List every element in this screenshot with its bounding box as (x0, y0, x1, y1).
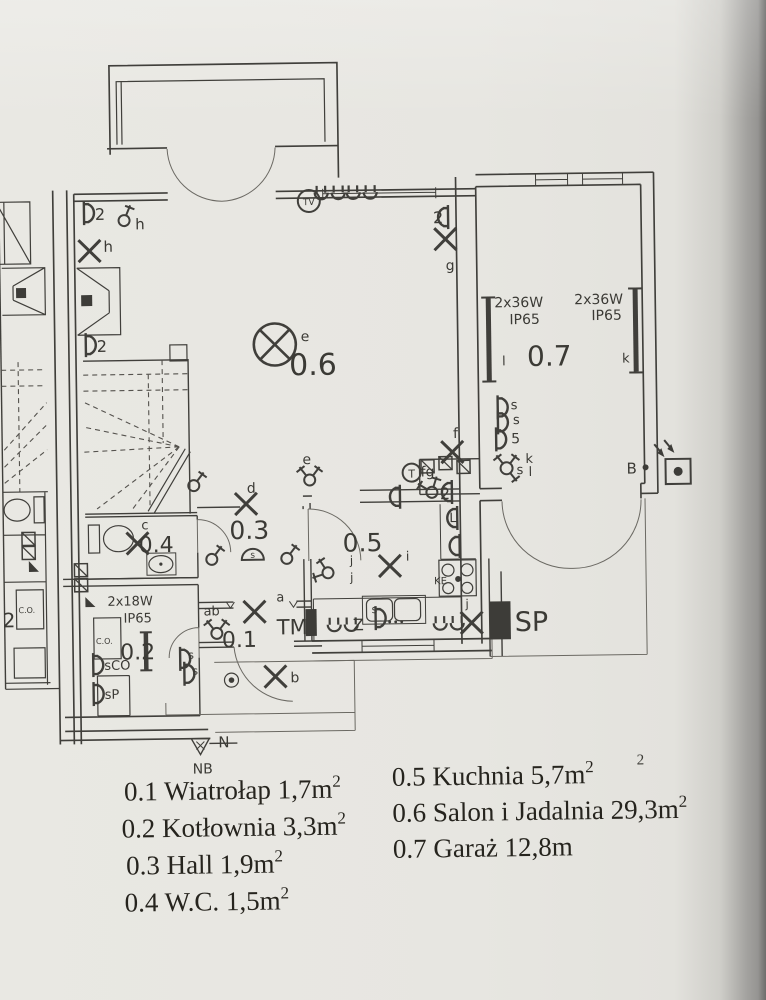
neighbor-room-number: 2 (2, 608, 15, 632)
bell-push-b (643, 464, 649, 470)
lamp-label-h: h (103, 238, 113, 256)
garage-door-arcs (502, 499, 642, 569)
wall-lamp-h (78, 240, 100, 262)
north-label: N (218, 733, 229, 751)
room-number-07: 0.7 (527, 339, 572, 373)
socket-label-s-a: s (188, 649, 194, 662)
switch-label-e: e (302, 452, 311, 468)
switch-label-fg: fg (421, 464, 435, 480)
sink-basin-right (394, 598, 420, 620)
sink-switch-label: s (371, 603, 377, 616)
socket-count-fg: 2 (440, 484, 450, 503)
entrance-double-door-arcs (167, 147, 276, 202)
legend-06: 0.6 Salon i Jadalnia 29,3m2 (392, 792, 687, 828)
garage-socket-label-s1: s (511, 398, 518, 413)
wc-door-arc (197, 519, 230, 552)
neighbor-tv-niche-box (16, 288, 26, 298)
stairs-switch (188, 471, 207, 491)
co-box-label: C.O. (96, 637, 113, 646)
wall-box-1 (74, 564, 87, 577)
garage-fluorescent-lamp-left (488, 299, 489, 381)
garage-socket-label-s2: s (513, 413, 520, 428)
lamp-label-i: i (406, 550, 410, 565)
room-number-03: 0.3 (229, 516, 269, 546)
kitchen-switch-j (311, 556, 338, 587)
thermostat-label: T (407, 468, 415, 481)
switch-label-j2: j (349, 570, 354, 584)
toilet-bowl (103, 525, 133, 551)
switch-e (297, 466, 323, 486)
neighbor-co-label: C.O. (18, 606, 35, 615)
kitchen-lamp-i (379, 555, 401, 577)
outdoor-lamp-b (264, 665, 286, 687)
bell-label: s (250, 551, 255, 561)
lamp-label-g: g (446, 258, 455, 274)
garage-lamp2-spec1: 2x36W (574, 292, 623, 309)
switch-label-ab: ab (203, 604, 219, 619)
sp-pillar (489, 601, 511, 639)
living-garage-wall (455, 177, 482, 644)
entry-exterior-door-arc (234, 646, 293, 702)
lamp-label-a: a (276, 590, 284, 605)
legend-05: 0.5 Kuchnia 5,7m2 (392, 757, 594, 792)
double-socket-mid (86, 333, 96, 357)
boiler-lamp-spec1: 2x18W (107, 594, 153, 610)
boiler-room-door-arc (169, 628, 199, 658)
socket-label-s-b: s (192, 665, 198, 678)
neighbor-wall-box-2 (22, 546, 35, 559)
room-legend: 0.1 Wiatrołap 1,7m20.5 Kuchnia 5,7m20.2 … (121, 756, 689, 918)
socket-label-sco: sCO (104, 659, 130, 674)
hall-switch-right (281, 544, 300, 564)
garage-socket-label-5: 5 (511, 431, 520, 447)
legend-02: 0.2 Kotłownia 3,3m2 (121, 809, 346, 844)
socket-count-top: 2 (95, 205, 105, 224)
garage-lamp2-spec2: IP65 (591, 308, 622, 324)
kitchen-socket-2 (449, 534, 459, 558)
room-number-06: 0.6 (289, 348, 337, 384)
lamp-label-j: j (464, 597, 469, 611)
legend-07: 0.7 Garaż 12,8m (393, 831, 573, 864)
wall-box-2 (75, 579, 88, 592)
sink-label: Z (353, 615, 364, 634)
sp-label: SP (515, 607, 549, 638)
entry-lamp-a (243, 601, 265, 623)
double-socket-top (84, 201, 94, 225)
kitchen-socket-label-L: L (449, 511, 457, 526)
garage-switch-label-s: s (516, 463, 523, 478)
socket-count-g: 2 (433, 208, 443, 227)
entrance-porch (106, 63, 339, 203)
legend-stray-sup: 2 (637, 752, 645, 768)
garage-switch-label-l: l (529, 465, 533, 480)
north-marker (191, 738, 237, 755)
lamp-label-e: e (301, 329, 310, 345)
lamp-label-d: d (247, 481, 256, 497)
boiler-lamp-spec2: IP65 (124, 611, 152, 626)
kitchen-lamp-j (461, 612, 483, 634)
toilet-tank (88, 525, 99, 553)
cooktop-label: KE (434, 576, 447, 587)
garage-lamp2-circuit: k (622, 352, 630, 367)
stair-banister (147, 449, 191, 514)
lamp-label-c: c (141, 518, 148, 533)
floor-plan-drawing: Photographed architectural electrical fl… (0, 0, 766, 1000)
switch-label-j1: j (349, 553, 354, 567)
legend-03: 0.3 Hall 1,9m2 (126, 846, 283, 880)
garage-lamp1-spec2: IP65 (509, 312, 540, 328)
kitchen-window (362, 639, 434, 652)
legend-04: 0.4 W.C. 1,5m2 (124, 883, 289, 917)
boiler-socket-sp (94, 682, 104, 706)
socket-count-mid: 2 (97, 337, 107, 356)
garage-windows (535, 173, 622, 186)
room-number-05: 0.5 (342, 528, 382, 558)
tm-label: TM (276, 615, 308, 639)
staircase (83, 345, 191, 515)
lamp-label-b: b (290, 670, 299, 686)
neighbor-toilet-tank (34, 497, 44, 523)
kitchen-socket-top (390, 485, 400, 509)
tv-niche (77, 268, 121, 336)
neighbor-toilet-bowl (4, 499, 30, 521)
stair-newel-post (170, 345, 187, 361)
kitchen-under-window-socket-2 (434, 616, 464, 630)
photographed-floor-plan-page: Photographed architectural electrical fl… (0, 0, 766, 1000)
garage-lamp1-spec1: 2x36W (494, 295, 543, 312)
pendant-label-h: h (135, 215, 145, 233)
garage-fluorescent-lamp-right (635, 289, 636, 371)
room-number-04: 0.4 (138, 533, 173, 558)
garage-b-label: B (626, 459, 637, 477)
tv-outlet-label: TV (302, 198, 316, 208)
party-wall (53, 190, 82, 744)
wall-lamp-g (434, 228, 456, 250)
hall-switch-left (206, 545, 225, 565)
garage-lamp1-circuit: l (502, 354, 506, 369)
room-number-01: 0.1 (222, 628, 257, 653)
socket-label-sp: sP (105, 688, 120, 703)
legend-01: 0.1 Wiatrołap 1,7m2 (124, 772, 341, 807)
boiler-socket-sco (93, 653, 103, 677)
